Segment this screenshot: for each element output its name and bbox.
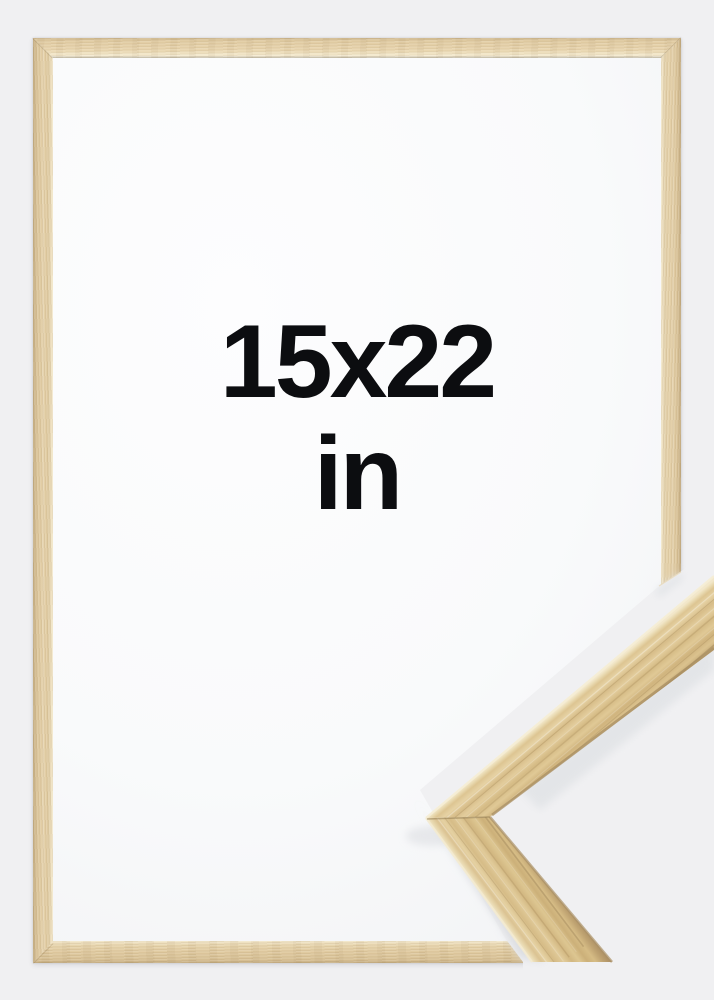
size-label-line2: in <box>53 418 661 530</box>
size-label-line1: 15x22 <box>53 306 661 418</box>
product-image: 15x22 in <box>0 0 714 1000</box>
size-label: 15x22 in <box>53 306 661 530</box>
